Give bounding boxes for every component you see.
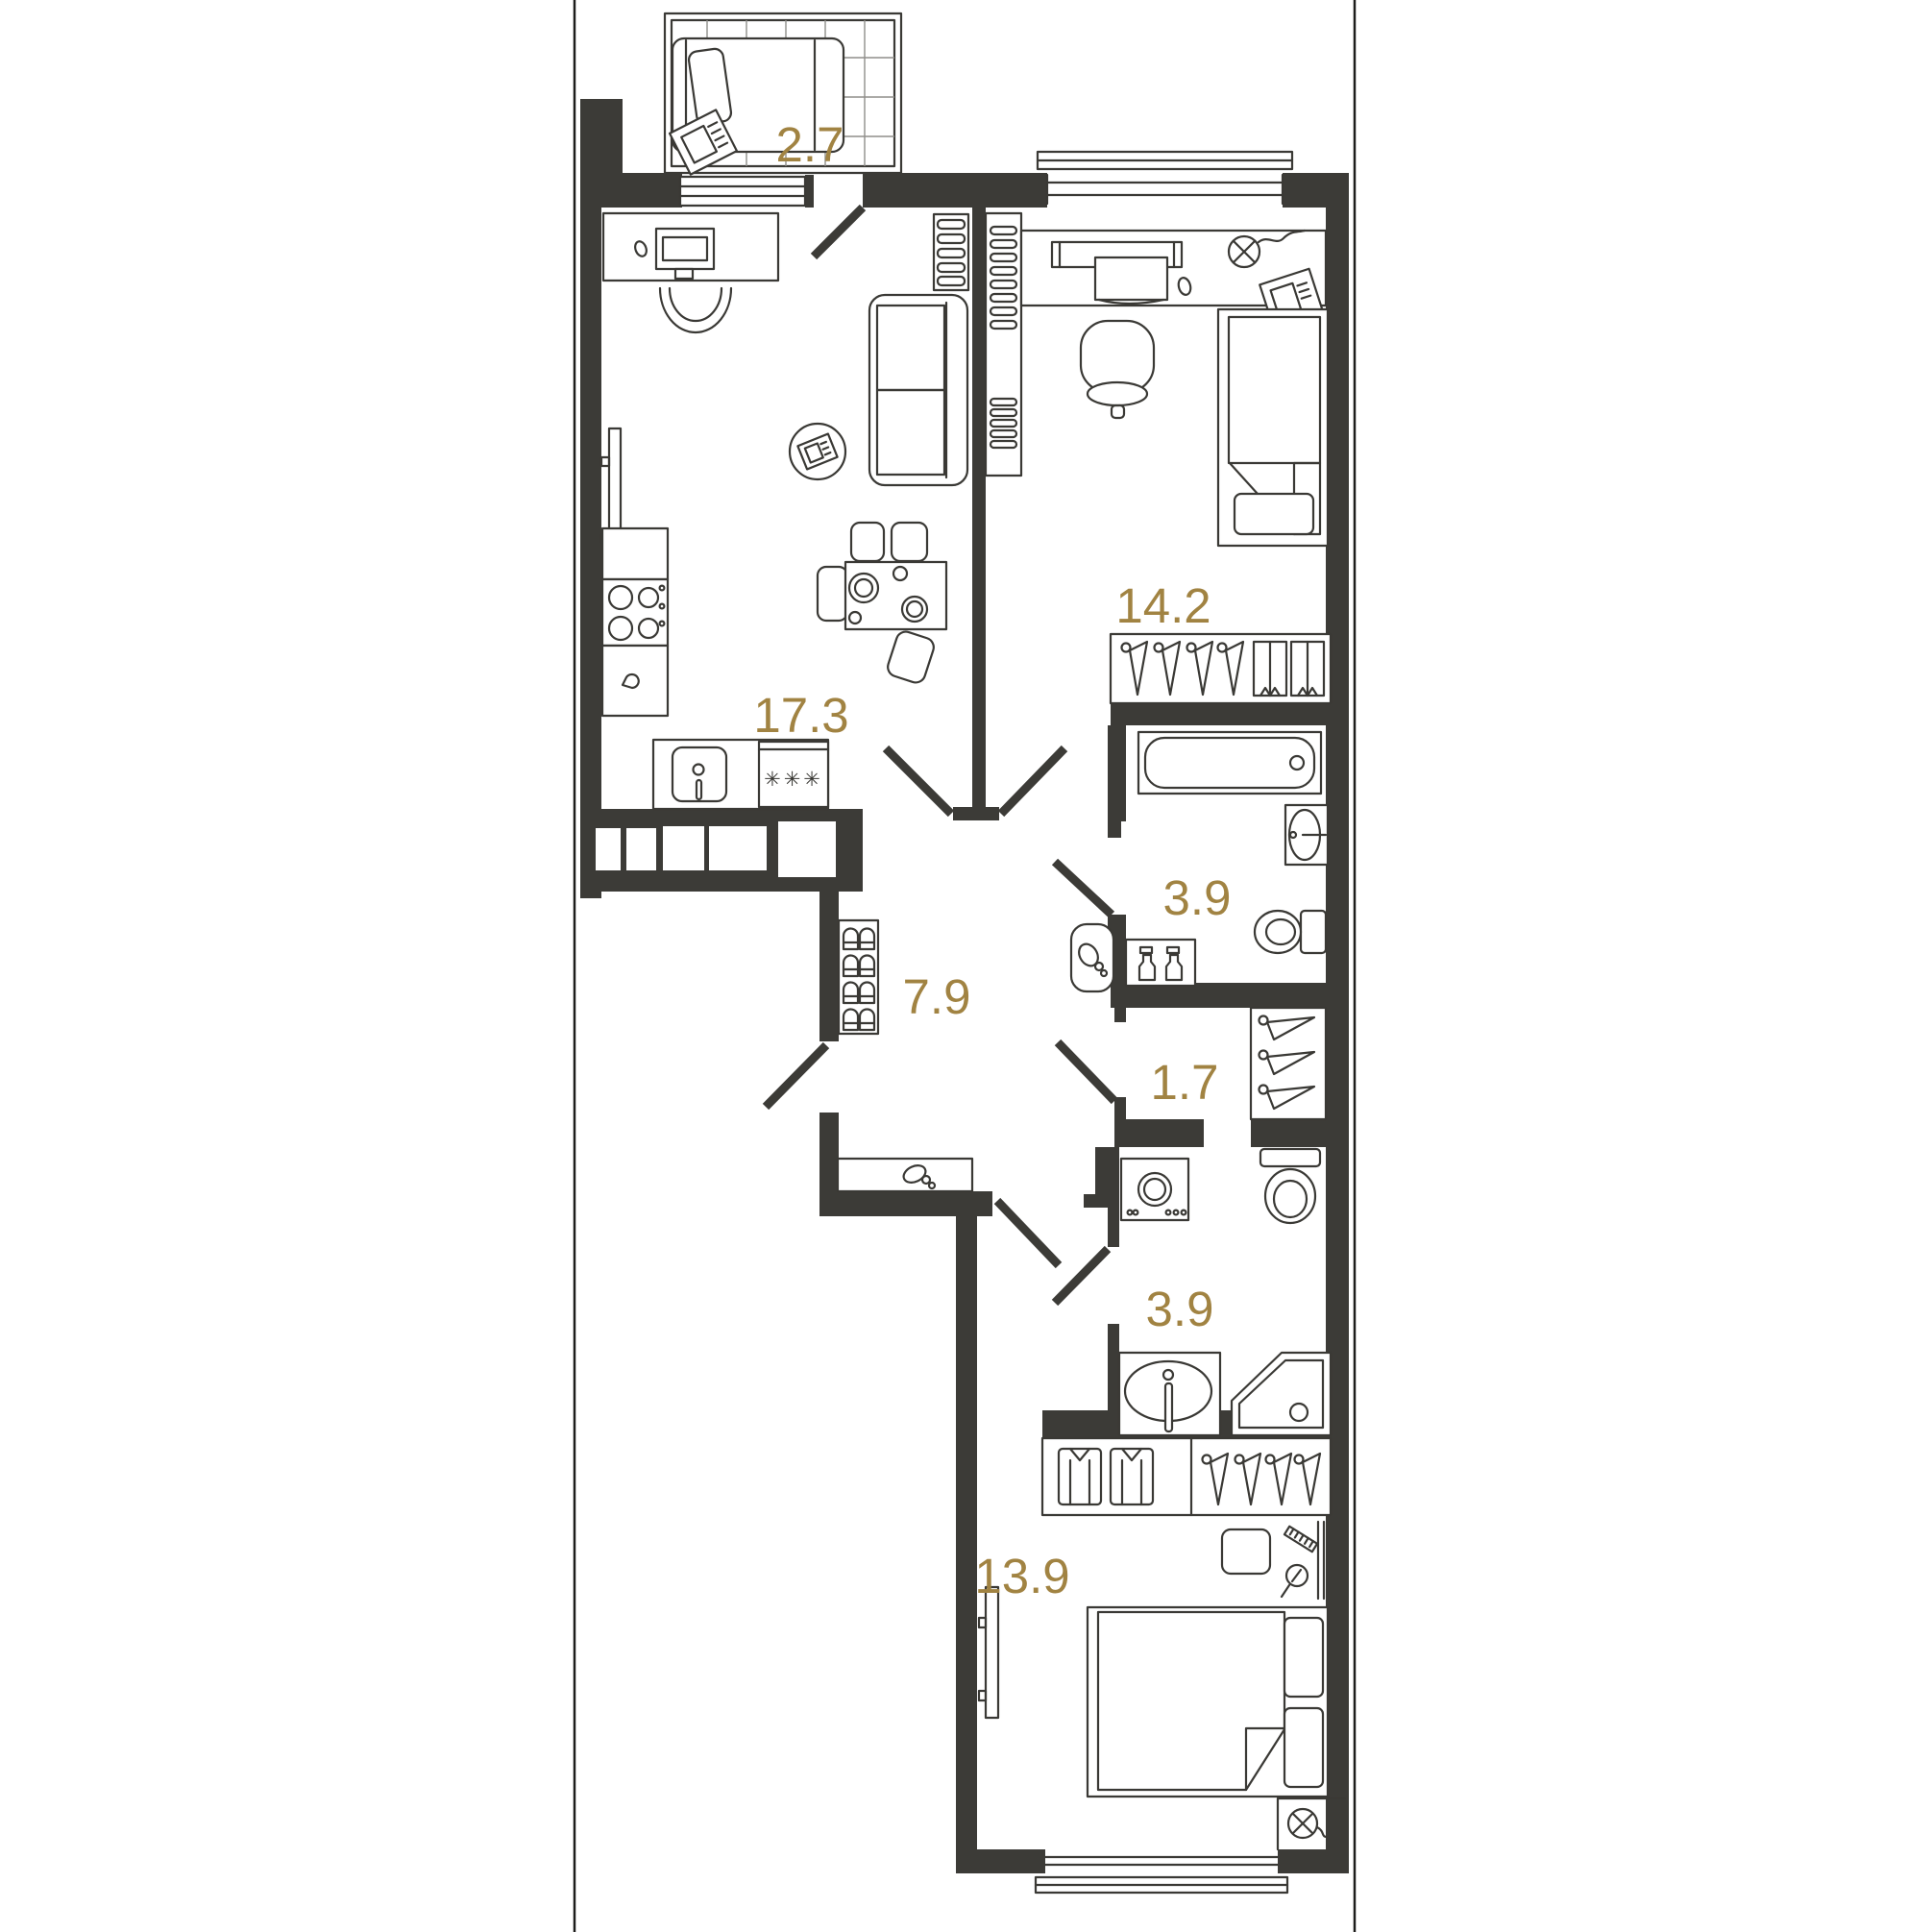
freezer-label: ✳✳✳ xyxy=(764,768,823,791)
spray-bottles-icon xyxy=(1126,940,1195,986)
laptop-icon xyxy=(1095,257,1167,300)
wardrobe-door-leaf xyxy=(1058,1042,1114,1101)
room-label-wardrobe: 1.7 xyxy=(1151,1055,1219,1110)
toilet-icon xyxy=(1260,1149,1320,1223)
room-label-shower-room: 3.9 xyxy=(1146,1282,1214,1336)
wardrobe-icon xyxy=(1111,634,1331,703)
bathroom-door-leaf xyxy=(1055,862,1112,915)
room-label-kitchen-living: 17.3 xyxy=(753,688,848,743)
bedroom-chair-icon xyxy=(1081,321,1154,418)
chair xyxy=(851,523,884,561)
corner-shower-icon xyxy=(1232,1353,1331,1435)
washing-machine-icon xyxy=(1121,1159,1188,1220)
room-label-bathroom: 3.9 xyxy=(1163,870,1232,925)
room-label-hallway: 7.9 xyxy=(903,969,971,1024)
stove-icon xyxy=(602,528,668,716)
nightstand-icon xyxy=(1222,1529,1270,1574)
bed-icon xyxy=(1218,309,1328,546)
coffee-table-icon xyxy=(790,424,845,479)
bedroom2-furniture xyxy=(979,1438,1345,1849)
radiator-shelf-living xyxy=(934,214,968,290)
pillow-icon xyxy=(1284,1708,1323,1787)
desk xyxy=(603,213,778,281)
bathtub-icon xyxy=(1138,732,1321,794)
freezer-icon: ✳✳✳ xyxy=(759,742,828,807)
chair xyxy=(818,567,847,621)
pillow-icon xyxy=(1235,494,1313,534)
double-bed-icon xyxy=(1088,1607,1328,1797)
laundry-basket-icon xyxy=(1071,924,1113,991)
pillow-icon xyxy=(1284,1618,1323,1697)
entrance-door-leaf xyxy=(766,1045,826,1107)
balcony-window xyxy=(680,177,805,206)
chair xyxy=(886,629,937,685)
desk-chair-icon xyxy=(660,288,731,332)
washbasin-icon xyxy=(1285,805,1328,865)
room-label-bedroom: 14.2 xyxy=(1115,578,1211,633)
hallway-furniture xyxy=(838,920,972,1191)
radiator-shelf-bedroom xyxy=(986,213,1021,476)
tv-icon xyxy=(979,1587,998,1718)
toilet-icon xyxy=(1255,911,1326,953)
shoe-rack-icon xyxy=(839,920,878,1034)
room-label-bedroom-2: 13.9 xyxy=(974,1549,1069,1603)
room-label-balcony: 2.7 xyxy=(776,117,844,172)
sofa-icon xyxy=(869,295,967,485)
hand-mirror-icon xyxy=(1282,1565,1308,1597)
kitchen-counter: ✳✳✳ xyxy=(653,740,828,809)
dining-set xyxy=(818,523,946,685)
comb-icon xyxy=(1284,1527,1317,1552)
chair xyxy=(892,523,927,561)
floor-plan-canvas: ✳✳✳ xyxy=(0,0,1932,1932)
bedroom-door-leaf xyxy=(1001,748,1064,814)
closet-furniture xyxy=(1251,1008,1326,1119)
vanity-strip xyxy=(1282,1522,1324,1599)
washbasin-icon xyxy=(1119,1353,1220,1435)
shower-room-door-leaf xyxy=(1055,1249,1108,1303)
floor-plan: ✳✳✳ xyxy=(0,0,1932,1932)
console-shelf-icon xyxy=(838,1159,972,1191)
living-room-door-leaf xyxy=(886,748,951,814)
corridor-door-leaf xyxy=(997,1201,1059,1265)
wardrobe-icon xyxy=(1042,1438,1331,1515)
balcony-door-leaf xyxy=(814,208,863,257)
